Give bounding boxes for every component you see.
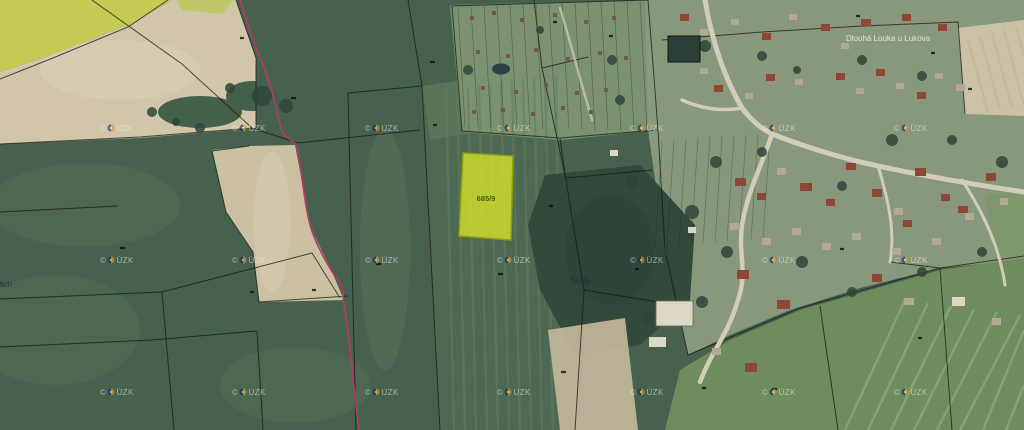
cadastral-map-viewport[interactable]: © ÚZK	[0, 0, 1024, 430]
aerial-map-canvas[interactable]: © ÚZK	[0, 0, 1024, 430]
place-label-left-clipped: lavrách	[0, 280, 12, 289]
place-label-skala: Skála	[570, 276, 591, 285]
highlighted-parcel[interactable]: 685/9	[459, 153, 513, 240]
parcel-number-label: 685/9	[477, 194, 496, 203]
large-barn-building	[656, 301, 693, 326]
bottom-beige-field	[548, 318, 638, 430]
cadastre-area-label: Dlouhá Louka u Lukova	[846, 34, 931, 43]
